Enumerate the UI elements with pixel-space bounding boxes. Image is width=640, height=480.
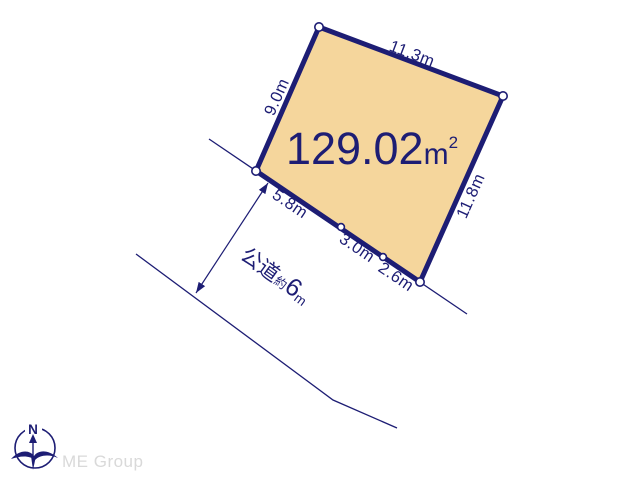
plot-area-unit-exponent: 2 [449, 133, 458, 152]
plot-area-unit: m [424, 138, 449, 171]
plot-corner-marker [252, 167, 260, 175]
plot-corner-marker [499, 92, 507, 100]
plot-corner-marker [416, 278, 424, 286]
segment-divider-marker [338, 224, 345, 231]
plot-area-value: 129.02 [286, 123, 424, 174]
compass-icon: N [11, 421, 58, 470]
survey-drawing: 11.3m 9.0m 11.8m 5.8m 3.0m 2.6m 129.02m2… [0, 0, 640, 480]
road-label: 公道約6m [235, 240, 316, 309]
land-plot-diagram: 11.3m 9.0m 11.8m 5.8m 3.0m 2.6m 129.02m2… [0, 0, 640, 480]
logo-text: ME Group [62, 452, 143, 471]
plot-corner-marker [315, 23, 323, 31]
